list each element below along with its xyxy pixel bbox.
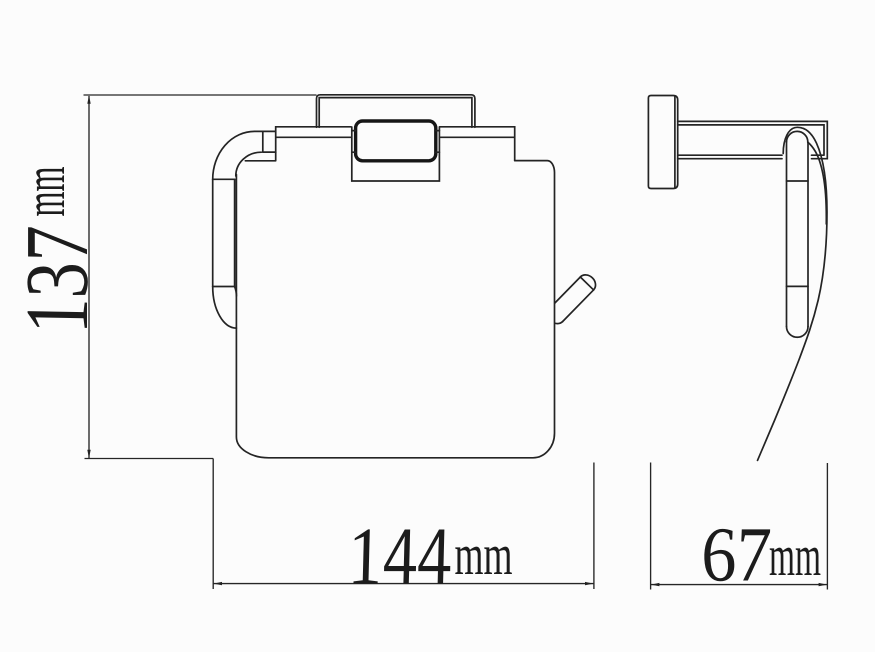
svg-text:mm: mm bbox=[11, 167, 77, 217]
svg-text:137: 137 bbox=[8, 217, 107, 340]
svg-text:67: 67 bbox=[695, 511, 778, 598]
svg-text:mm: mm bbox=[455, 522, 513, 587]
svg-text:mm: mm bbox=[769, 523, 821, 588]
svg-text:144: 144 bbox=[342, 511, 456, 602]
